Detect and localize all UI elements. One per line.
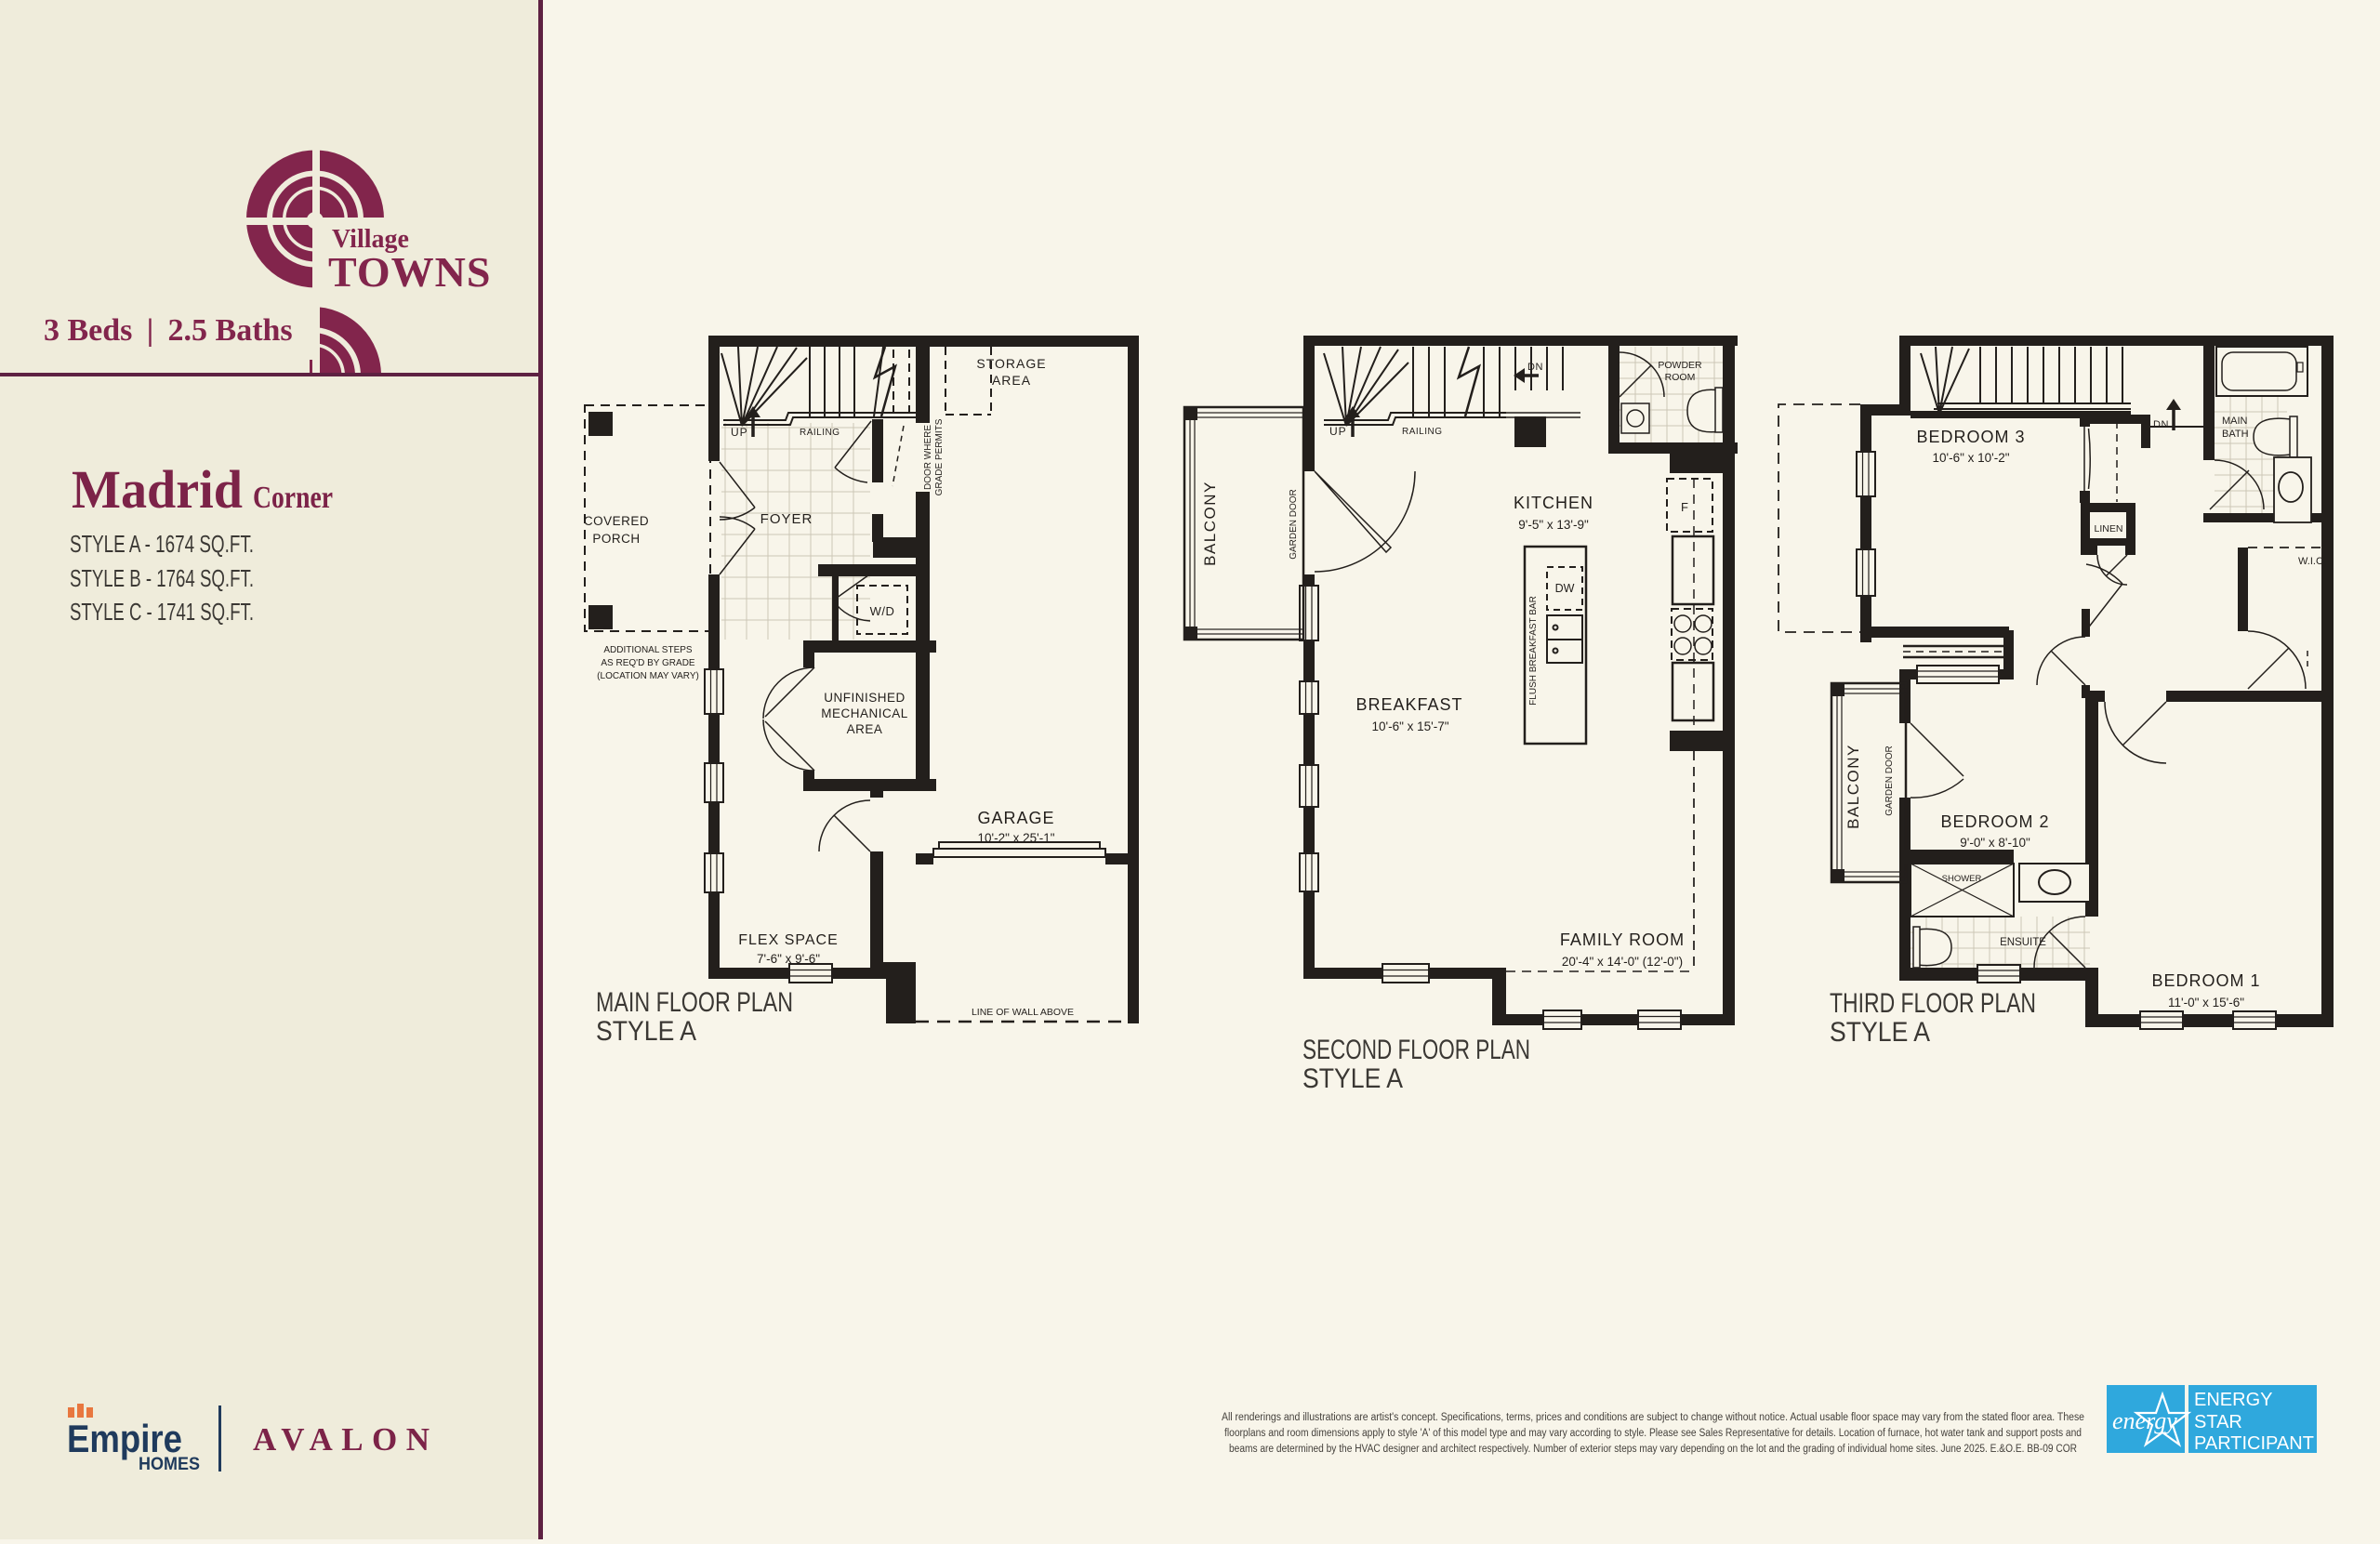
svg-text:GARAGE: GARAGE — [977, 809, 1054, 827]
svg-text:TOWNS: TOWNS — [328, 248, 491, 296]
svg-text:LINE OF WALL ABOVE: LINE OF WALL ABOVE — [972, 1007, 1074, 1018]
svg-text:DN: DN — [1527, 362, 1543, 373]
svg-text:BREAKFAST: BREAKFAST — [1355, 695, 1462, 714]
svg-text:RAILING: RAILING — [800, 428, 840, 438]
svg-text:LINEN: LINEN — [2095, 523, 2123, 534]
svg-text:11'-0" x 15'-6": 11'-0" x 15'-6" — [2168, 996, 2244, 1010]
svg-text:GARDEN DOOR: GARDEN DOOR — [1289, 489, 1299, 560]
svg-text:STYLE A - 1674 SQ.FT.: STYLE A - 1674 SQ.FT. — [70, 530, 254, 558]
svg-text:W/D: W/D — [870, 604, 895, 618]
svg-text:UP: UP — [1329, 425, 1347, 438]
svg-text:KITCHEN: KITCHEN — [1514, 494, 1593, 512]
svg-text:3 Beds | 2.5 Baths: 3 Beds | 2.5 Baths — [44, 313, 293, 348]
svg-text:All renderings and illustratio: All renderings and illustrations are art… — [1222, 1412, 2084, 1423]
svg-text:AREA: AREA — [847, 722, 883, 736]
svg-text:FLUSH BREAKFAST BAR: FLUSH BREAKFAST BAR — [1528, 596, 1539, 706]
svg-text:STYLE A: STYLE A — [596, 1016, 696, 1047]
svg-text:UP: UP — [731, 426, 748, 439]
svg-text:BATH: BATH — [2222, 429, 2249, 440]
svg-text:Madrid: Madrid — [72, 459, 243, 520]
svg-text:F: F — [1681, 500, 1688, 514]
svg-text:ENERGY: ENERGY — [2194, 1390, 2272, 1410]
svg-text:W.I.C.: W.I.C. — [2298, 556, 2326, 567]
svg-text:BALCONY: BALCONY — [1201, 481, 1219, 566]
svg-text:RAILING: RAILING — [1402, 427, 1443, 437]
svg-text:FLEX SPACE: FLEX SPACE — [738, 932, 839, 948]
svg-text:POWDER: POWDER — [1658, 360, 1702, 371]
svg-text:FOYER: FOYER — [760, 511, 813, 527]
svg-text:BEDROOM 3: BEDROOM 3 — [1916, 428, 2025, 446]
svg-text:SHOWER: SHOWER — [1942, 874, 1982, 884]
svg-text:7'-6" x 9'-6": 7'-6" x 9'-6" — [757, 952, 820, 966]
svg-text:AS REQ'D BY GRADE: AS REQ'D BY GRADE — [601, 658, 695, 668]
svg-text:BALCONY: BALCONY — [1844, 744, 1862, 829]
svg-text:Empire: Empire — [67, 1417, 182, 1460]
svg-text:10'-6" x 10'-2": 10'-6" x 10'-2" — [1932, 451, 2009, 465]
svg-text:ENSUITE: ENSUITE — [2000, 937, 2046, 948]
svg-text:BEDROOM 1: BEDROOM 1 — [2151, 971, 2260, 990]
svg-text:STORAGE: STORAGE — [976, 356, 1046, 371]
svg-text:MAIN FLOOR PLAN: MAIN FLOOR PLAN — [596, 987, 793, 1018]
svg-text:DOOR WHERE: DOOR WHERE — [923, 425, 933, 490]
svg-text:(LOCATION MAY VARY): (LOCATION MAY VARY) — [597, 671, 699, 681]
svg-text:STYLE C - 1741 SQ.FT.: STYLE C - 1741 SQ.FT. — [70, 598, 254, 626]
svg-text:9'-0" x 8'-10": 9'-0" x 8'-10" — [1960, 836, 2030, 850]
svg-text:DN: DN — [2153, 419, 2169, 430]
svg-text:COVERED: COVERED — [584, 514, 649, 528]
svg-text:FAMILY ROOM: FAMILY ROOM — [1560, 930, 1685, 949]
svg-text:BEDROOM 2: BEDROOM 2 — [1940, 812, 2049, 831]
svg-text:GARDEN DOOR: GARDEN DOOR — [1884, 746, 1895, 816]
svg-text:GRADE PERMITS: GRADE PERMITS — [934, 418, 945, 495]
svg-text:STAR: STAR — [2194, 1412, 2242, 1432]
svg-text:AREA: AREA — [992, 373, 1031, 388]
svg-text:10'-6" x 15'-7": 10'-6" x 15'-7" — [1371, 719, 1448, 733]
svg-text:DW: DW — [1555, 582, 1575, 595]
svg-text:MAIN: MAIN — [2222, 416, 2248, 427]
svg-text:9'-5" x 13'-9": 9'-5" x 13'-9" — [1518, 518, 1589, 532]
svg-text:PORCH: PORCH — [592, 532, 640, 546]
svg-text:20'-4" x 14'-0" (12'-0"): 20'-4" x 14'-0" (12'-0") — [1562, 955, 1683, 969]
svg-text:MECHANICAL: MECHANICAL — [821, 706, 908, 720]
svg-text:HOMES: HOMES — [139, 1455, 200, 1474]
svg-text:ADDITIONAL STEPS: ADDITIONAL STEPS — [603, 645, 693, 655]
svg-text:STYLE A: STYLE A — [1830, 1017, 1930, 1048]
svg-text:STYLE A: STYLE A — [1302, 1063, 1403, 1094]
svg-text:PARTICIPANT: PARTICIPANT — [2194, 1433, 2314, 1454]
svg-text:STYLE B - 1764 SQ.FT.: STYLE B - 1764 SQ.FT. — [70, 564, 254, 592]
svg-text:Corner: Corner — [253, 481, 333, 515]
svg-text:UNFINISHED: UNFINISHED — [824, 691, 906, 705]
svg-text:floorplans and room dimensions: floorplans and room dimensions apply to … — [1224, 1428, 2082, 1439]
svg-text:THIRD FLOOR PLAN: THIRD FLOOR PLAN — [1830, 988, 2036, 1019]
svg-text:beams are determined by the HV: beams are determined by the HVAC designe… — [1229, 1444, 2077, 1455]
svg-text:ROOM: ROOM — [1665, 372, 1696, 383]
svg-text:SECOND FLOOR PLAN: SECOND FLOOR PLAN — [1302, 1035, 1530, 1065]
